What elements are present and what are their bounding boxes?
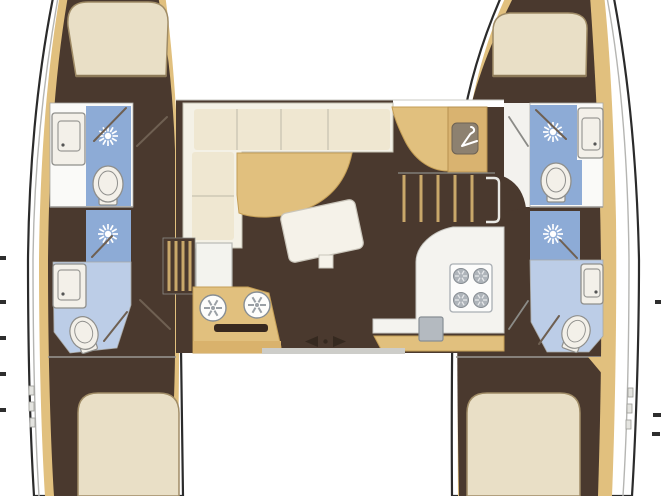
galley-square-sink [419, 317, 443, 341]
galley-drawer-slot [214, 324, 268, 332]
saloon [163, 100, 504, 354]
hull-fitting-mark [0, 372, 6, 376]
galley-sink-counter [193, 287, 281, 353]
hull-fitting-mark [0, 336, 6, 340]
galley-sink-icon [244, 292, 270, 318]
hull-window [626, 420, 631, 429]
port-forward-head [50, 103, 133, 207]
stove-burner-icon [454, 293, 469, 308]
galley-sink-icon [200, 295, 226, 321]
port-hull [0, 0, 183, 496]
floor-hatch [319, 255, 333, 268]
stove-top [450, 264, 492, 312]
stove-burner-icon [474, 293, 489, 308]
saloon-top-gap [393, 100, 504, 107]
galley-fridge-cabinet [196, 243, 232, 292]
port-forward-berth [68, 2, 168, 76]
hull-fitting-mark [0, 256, 6, 260]
floorplan-canvas [0, 0, 661, 496]
starboard-forward-berth [493, 13, 587, 76]
hull-window [627, 404, 632, 413]
hull-fitting-mark [0, 300, 6, 304]
starboard-aft-berth [467, 393, 580, 496]
hull-window [30, 418, 35, 427]
stove-burner-icon [454, 269, 469, 284]
starboard-forward-head [530, 103, 603, 207]
catamaran-floorplan [0, 0, 661, 496]
hull-fitting-mark [653, 413, 661, 417]
hull-window [29, 402, 34, 411]
sofa-cushions-top [194, 109, 390, 150]
hull-fitting-mark [652, 432, 660, 436]
hull-fitting-mark [655, 300, 661, 304]
hull-window [628, 388, 633, 397]
port-aft-berth [78, 393, 179, 496]
wardrobe-hanger-icon [452, 123, 478, 154]
hull-fitting-mark [0, 408, 6, 412]
port-companionway-stairs [163, 238, 195, 294]
stove-burner-icon [474, 269, 489, 284]
door-threshold [262, 348, 405, 354]
hull-window [29, 386, 34, 395]
